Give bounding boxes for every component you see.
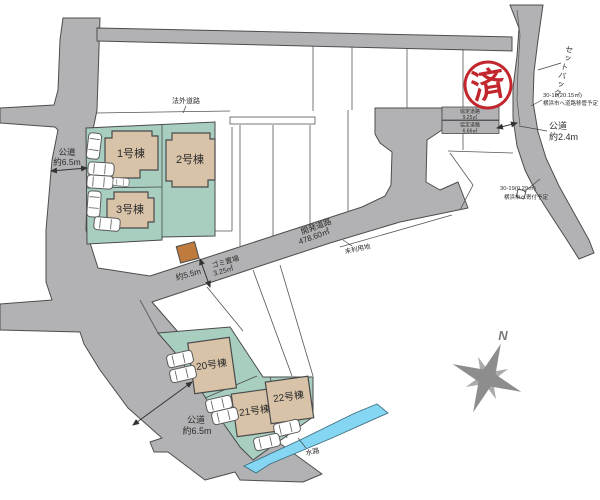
illegal-road-label: 法外道路 <box>172 96 200 105</box>
agreement-road-2-name: 協定道路 <box>460 122 480 129</box>
car-icon <box>86 132 102 159</box>
garbage-box <box>176 242 199 263</box>
parcel-30-19-note: 横浜市へ寄付予定 <box>504 193 549 201</box>
car-icon <box>88 162 115 177</box>
agreement-road-1-area: 9.25㎡ <box>463 114 478 121</box>
building-3-label: 3号棟 <box>116 202 144 216</box>
lot-line <box>280 265 313 376</box>
agreement-road-1-name: 協定道路 <box>460 108 480 115</box>
top-road <box>97 28 512 51</box>
bottom-road-name: 公道 <box>187 414 205 425</box>
agreement-road-box-2: 協定道路 6.66㎡ <box>442 121 499 135</box>
bottom-road-width: 約6.5m <box>182 425 211 436</box>
car-icon <box>87 191 102 218</box>
lot-line <box>207 287 243 331</box>
parcel-30-18-note: 横浜市へ道路移管予定 <box>543 99 599 107</box>
agreement-road-2-area: 6.66㎡ <box>463 128 478 135</box>
car-icon <box>87 175 114 190</box>
compass-north-label: N <box>498 328 508 343</box>
right-road-name: 公道 <box>549 120 567 131</box>
done-stamp: 済 <box>461 58 514 111</box>
car-icon <box>113 177 130 186</box>
parcel-30-19-id: 30-19(0.29㎡) <box>500 184 536 192</box>
building-1-label: 1号棟 <box>117 146 145 160</box>
lot-line <box>96 111 230 113</box>
lot-line <box>448 151 513 153</box>
left-road-name: 公道 <box>58 147 76 157</box>
right-road-width: 約2.4m <box>549 131 578 142</box>
car-icon <box>93 216 120 231</box>
compass-icon <box>439 330 535 426</box>
building-2-label: 2号棟 <box>176 152 204 166</box>
retaining-wall <box>230 117 315 124</box>
left-road-width: 約6.5m <box>53 157 80 167</box>
site-plan-drawing: 協定道路 9.25㎡ 協定道路 6.66㎡ 済 N 1号棟 2号棟 3号棟 20… <box>0 0 600 500</box>
site-plan-page: 協定道路 9.25㎡ 協定道路 6.66㎡ 済 N 1号棟 2号棟 3号棟 20… <box>0 0 600 500</box>
